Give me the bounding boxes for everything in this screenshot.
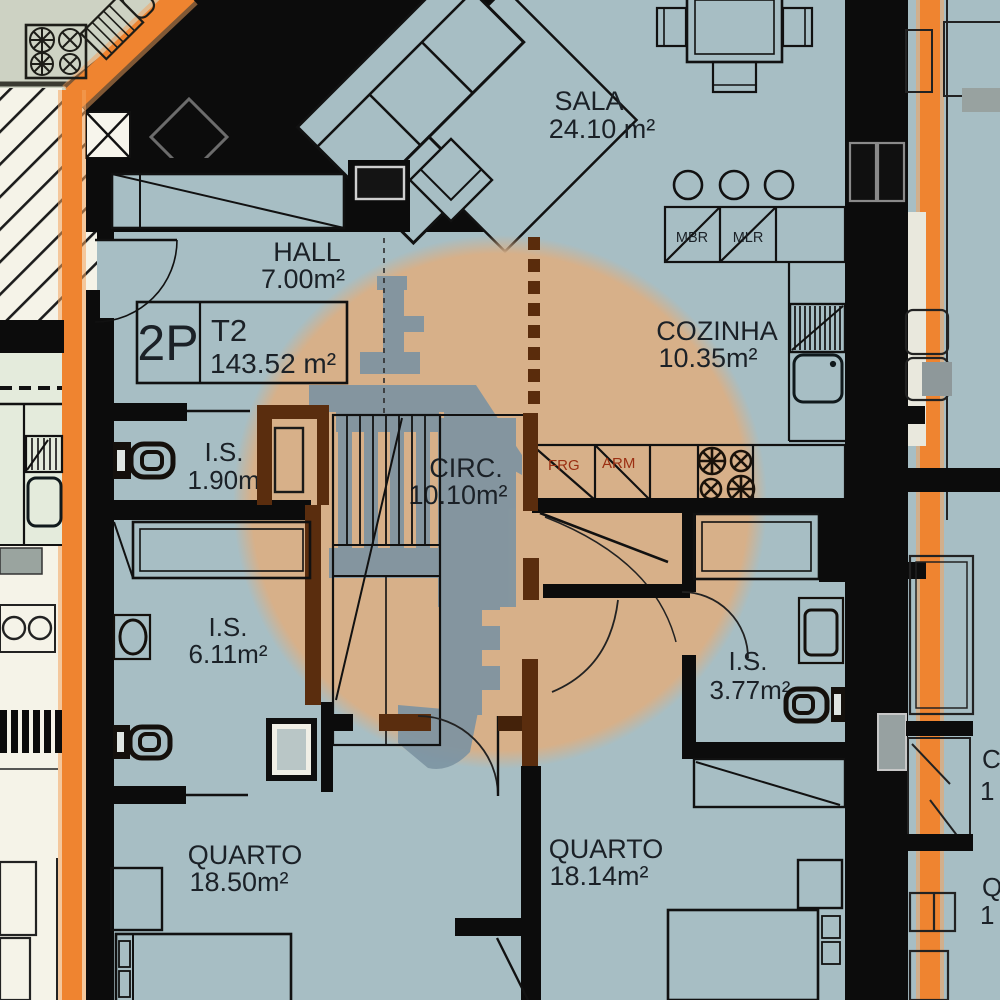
svg-text:MLR: MLR bbox=[733, 230, 764, 246]
svg-text:QUARTO: QUARTO bbox=[188, 840, 303, 870]
svg-text:FRG: FRG bbox=[548, 457, 580, 474]
svg-text:143.52 m²: 143.52 m² bbox=[210, 348, 336, 379]
svg-text:24.10 m²: 24.10 m² bbox=[549, 114, 656, 144]
svg-text:10.10m²: 10.10m² bbox=[408, 480, 507, 510]
svg-text:SALA: SALA bbox=[554, 86, 623, 116]
svg-text:10.35m²: 10.35m² bbox=[658, 343, 757, 373]
svg-text:6.11m²: 6.11m² bbox=[189, 639, 268, 669]
svg-text:1: 1 bbox=[980, 900, 994, 930]
svg-text:18.50m²: 18.50m² bbox=[189, 867, 288, 897]
svg-text:18.14m²: 18.14m² bbox=[549, 861, 648, 891]
svg-text:I.S.: I.S. bbox=[208, 612, 247, 642]
svg-text:I.S.: I.S. bbox=[728, 646, 767, 676]
svg-text:1: 1 bbox=[980, 776, 994, 806]
svg-text:7.00m²: 7.00m² bbox=[261, 264, 345, 294]
svg-text:QUARTO: QUARTO bbox=[549, 834, 664, 864]
svg-text:COZINHA: COZINHA bbox=[656, 316, 778, 346]
svg-text:1.90m²: 1.90m² bbox=[188, 465, 269, 495]
svg-text:I.S.: I.S. bbox=[204, 437, 243, 467]
svg-text:ARM: ARM bbox=[602, 455, 635, 472]
svg-text:MBR: MBR bbox=[676, 230, 708, 246]
svg-text:2P: 2P bbox=[137, 315, 198, 371]
svg-text:3.77m²: 3.77m² bbox=[710, 675, 791, 705]
svg-text:Q: Q bbox=[982, 872, 1000, 902]
svg-text:T2: T2 bbox=[211, 313, 247, 348]
svg-text:HALL: HALL bbox=[273, 237, 341, 267]
svg-text:C: C bbox=[982, 744, 1000, 774]
